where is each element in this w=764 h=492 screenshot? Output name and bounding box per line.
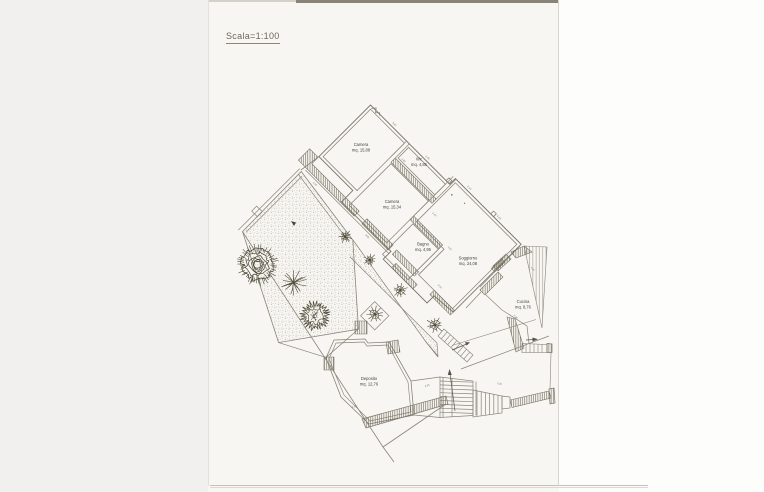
svg-text:Wc: Wc xyxy=(416,157,422,162)
svg-text:Camera: Camera xyxy=(385,199,400,204)
svg-text:mq. 12,76: mq. 12,76 xyxy=(360,382,379,387)
svg-text:Deposito: Deposito xyxy=(361,376,378,381)
svg-text:mq. 15,88: mq. 15,88 xyxy=(352,148,371,153)
svg-text:Cucina: Cucina xyxy=(517,299,530,304)
svg-text:2.80: 2.80 xyxy=(401,158,407,164)
svg-text:mq. 24,08: mq. 24,08 xyxy=(459,261,478,266)
svg-text:mq. 4,95: mq. 4,95 xyxy=(415,247,432,252)
svg-text:mq. 15,34: mq. 15,34 xyxy=(383,205,402,210)
svg-text:1.20: 1.20 xyxy=(447,246,453,252)
svg-text:8.15: 8.15 xyxy=(351,405,357,409)
svg-text:3.10: 3.10 xyxy=(437,284,443,290)
svg-text:Camera: Camera xyxy=(354,142,369,147)
svg-text:mq. 8,76: mq. 8,76 xyxy=(515,305,532,310)
svg-text:Soggiorno: Soggiorno xyxy=(459,256,478,261)
svg-text:4.30: 4.30 xyxy=(424,384,430,388)
svg-text:1.40: 1.40 xyxy=(431,212,437,218)
svg-text:mq. 4,85: mq. 4,85 xyxy=(411,162,428,167)
svg-text:2.20: 2.20 xyxy=(497,382,503,386)
svg-text:3.55: 3.55 xyxy=(364,234,370,240)
svg-text:Bagno: Bagno xyxy=(417,242,430,247)
